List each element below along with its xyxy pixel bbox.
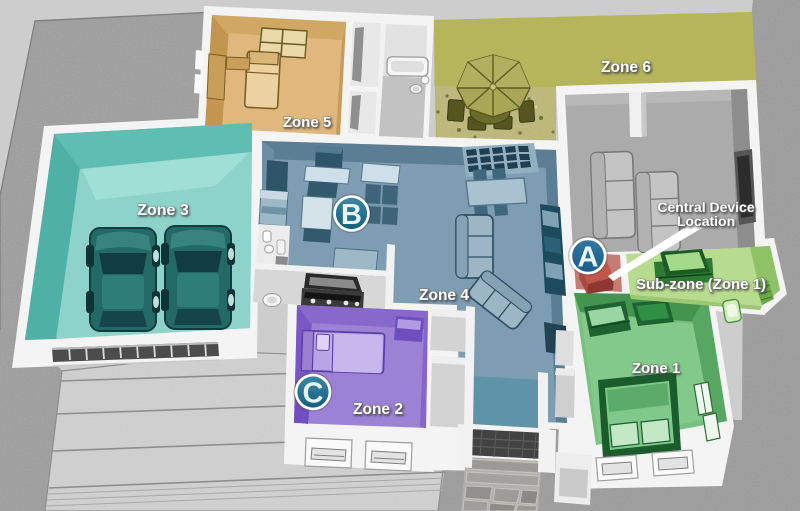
svg-text:C: C	[303, 378, 324, 410]
svg-text:Zone 5: Zone 5	[283, 114, 331, 131]
svg-text:A: A	[578, 242, 599, 274]
svg-text:Zone 4: Zone 4	[419, 287, 469, 304]
svg-text:Zone 1: Zone 1	[632, 360, 680, 377]
svg-text:Location: Location	[677, 213, 735, 229]
svg-text:Sub-zone (Zone 1): Sub-zone (Zone 1)	[636, 276, 766, 293]
svg-text:Zone 2: Zone 2	[353, 401, 403, 418]
svg-text:Zone 3: Zone 3	[137, 202, 189, 219]
svg-text:B: B	[341, 199, 362, 231]
svg-text:Zone 6: Zone 6	[601, 59, 651, 76]
